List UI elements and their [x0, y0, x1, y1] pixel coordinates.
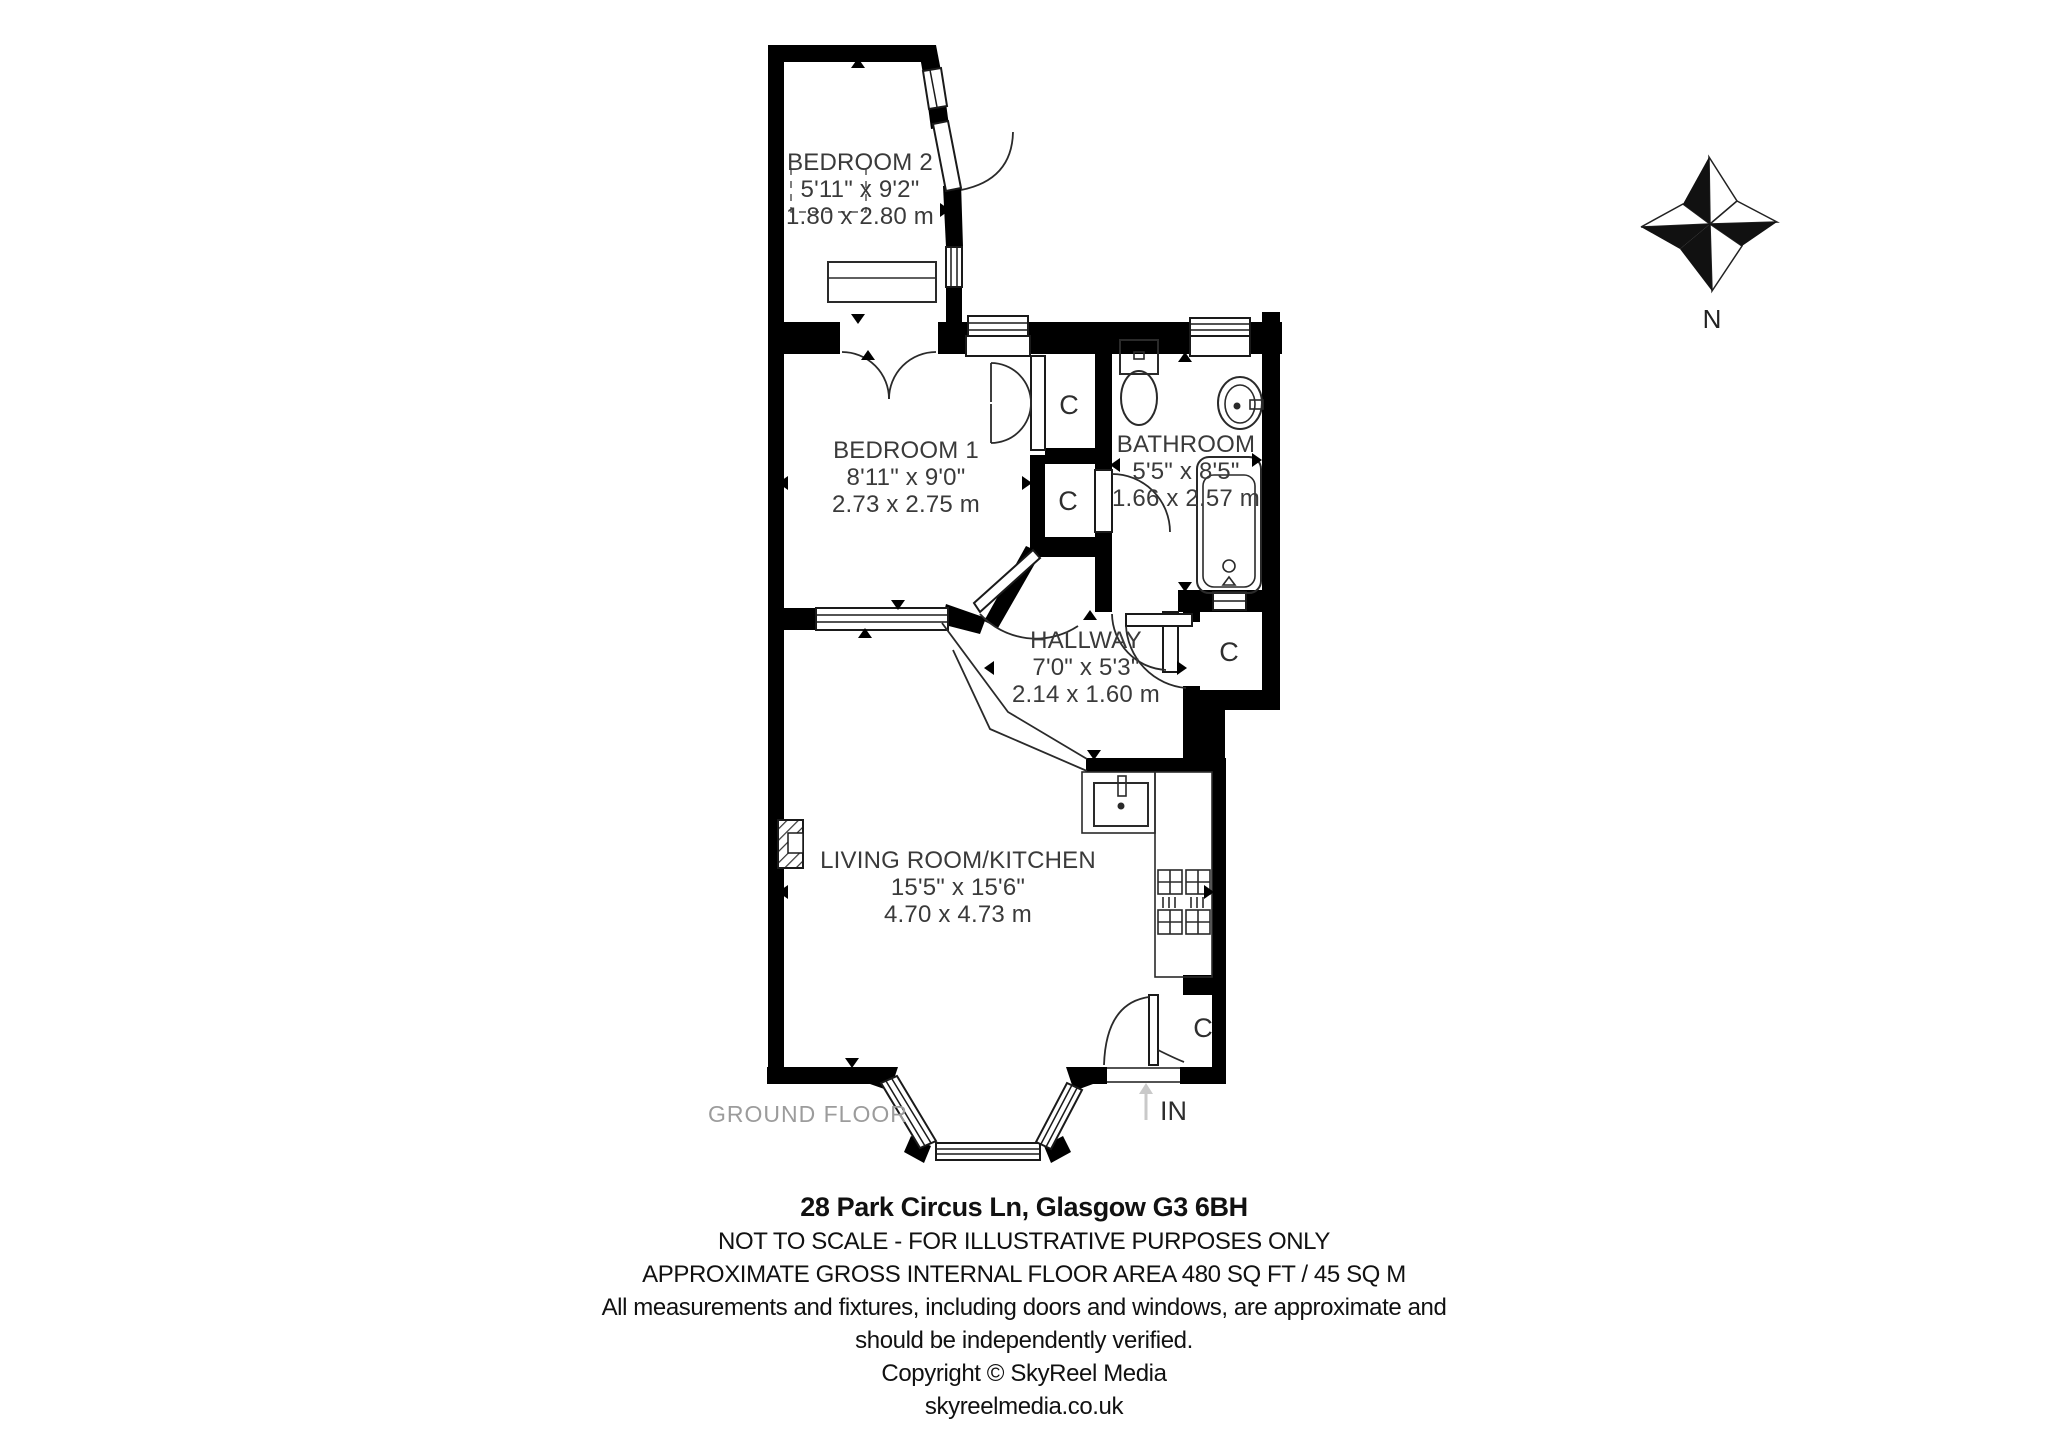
- bedroom1-window: [816, 608, 948, 630]
- living-room-size-imperial: 15'5" x 15'6": [891, 874, 1025, 901]
- footer: 28 Park Circus Ln, Glasgow G3 6BH NOT TO…: [602, 1192, 1447, 1420]
- footer-copyright: Copyright © SkyReel Media: [881, 1360, 1167, 1387]
- top-wall-window-left: [966, 316, 1030, 356]
- bedroom2-size-metric: 1.80 x 2.80 m: [786, 203, 934, 230]
- kitchen-sink: [1094, 776, 1148, 826]
- floorplan-page: BEDROOM 2 5'11" x 9'2" 1.80 x 2.80 m BED…: [0, 0, 2048, 1447]
- bathroom-size-imperial: 5'5" x 8'5": [1132, 458, 1239, 485]
- living-room-name: LIVING ROOM/KITCHEN: [820, 847, 1096, 874]
- floor-label: GROUND FLOOR: [708, 1101, 908, 1127]
- fireplace: [778, 820, 803, 868]
- bedroom2-slant-window: [923, 68, 947, 109]
- footer-area-note: APPROXIMATE GROSS INTERNAL FLOOR AREA 48…: [642, 1261, 1406, 1288]
- closet-upper-bifold-door: [991, 356, 1045, 450]
- bay-window-bottom: [936, 1143, 1040, 1160]
- entrance-door: [1104, 995, 1184, 1082]
- bed: [828, 262, 936, 302]
- living-room-size-metric: 4.70 x 4.73 m: [884, 901, 1032, 928]
- entry-arrow-head-icon: [1139, 1083, 1153, 1094]
- bedroom1-french-doors: [842, 352, 936, 399]
- bedroom2-exterior-door: [933, 121, 1013, 191]
- entrance-marker: IN: [1139, 1083, 1187, 1126]
- bedroom2-name: BEDROOM 2: [787, 149, 933, 176]
- bedroom1-door: [974, 550, 1078, 639]
- stove: [1158, 870, 1210, 934]
- bathroom-name: BATHROOM: [1117, 431, 1256, 458]
- bathroom-sink: [1218, 377, 1263, 429]
- hallway-size-imperial: 7'0" x 5'3": [1032, 654, 1139, 681]
- bedroom1-size-imperial: 8'11" x 9'0": [847, 464, 966, 491]
- closet-upper-label: C: [1059, 390, 1079, 420]
- entrance-label: IN: [1160, 1096, 1187, 1126]
- footer-disclaimer-1: All measurements and fixtures, including…: [602, 1294, 1447, 1321]
- bedroom2-size-imperial: 5'11" x 9'2": [801, 176, 920, 203]
- bathroom-window: [1190, 318, 1250, 356]
- bathroom-size-metric: 1.66 x 2.57 m: [1112, 485, 1260, 512]
- compass-north-label: N: [1703, 304, 1722, 334]
- bedroom1-size-metric: 2.73 x 2.75 m: [832, 491, 980, 518]
- footer-disclaimer-2: should be independently verified.: [855, 1327, 1193, 1354]
- bedroom1-name: BEDROOM 1: [833, 437, 979, 464]
- closet-hall-label: C: [1219, 637, 1239, 667]
- footer-address: 28 Park Circus Ln, Glasgow G3 6BH: [800, 1192, 1247, 1222]
- compass-rose-icon: N: [1641, 157, 1777, 334]
- hallway-name: HALLWAY: [1030, 627, 1142, 654]
- closet-entry-label: C: [1193, 1013, 1213, 1043]
- hallway-size-metric: 2.14 x 1.60 m: [1012, 681, 1160, 708]
- closet-lower-label: C: [1058, 486, 1078, 516]
- bedroom2-side-window: [946, 247, 962, 287]
- footer-website: skyreelmedia.co.uk: [925, 1393, 1125, 1420]
- floorplan-canvas: BEDROOM 2 5'11" x 9'2" 1.80 x 2.80 m BED…: [0, 0, 2048, 1447]
- bathroom-wall-niche: [1213, 592, 1246, 610]
- footer-scale-note: NOT TO SCALE - FOR ILLUSTRATIVE PURPOSES…: [718, 1228, 1330, 1255]
